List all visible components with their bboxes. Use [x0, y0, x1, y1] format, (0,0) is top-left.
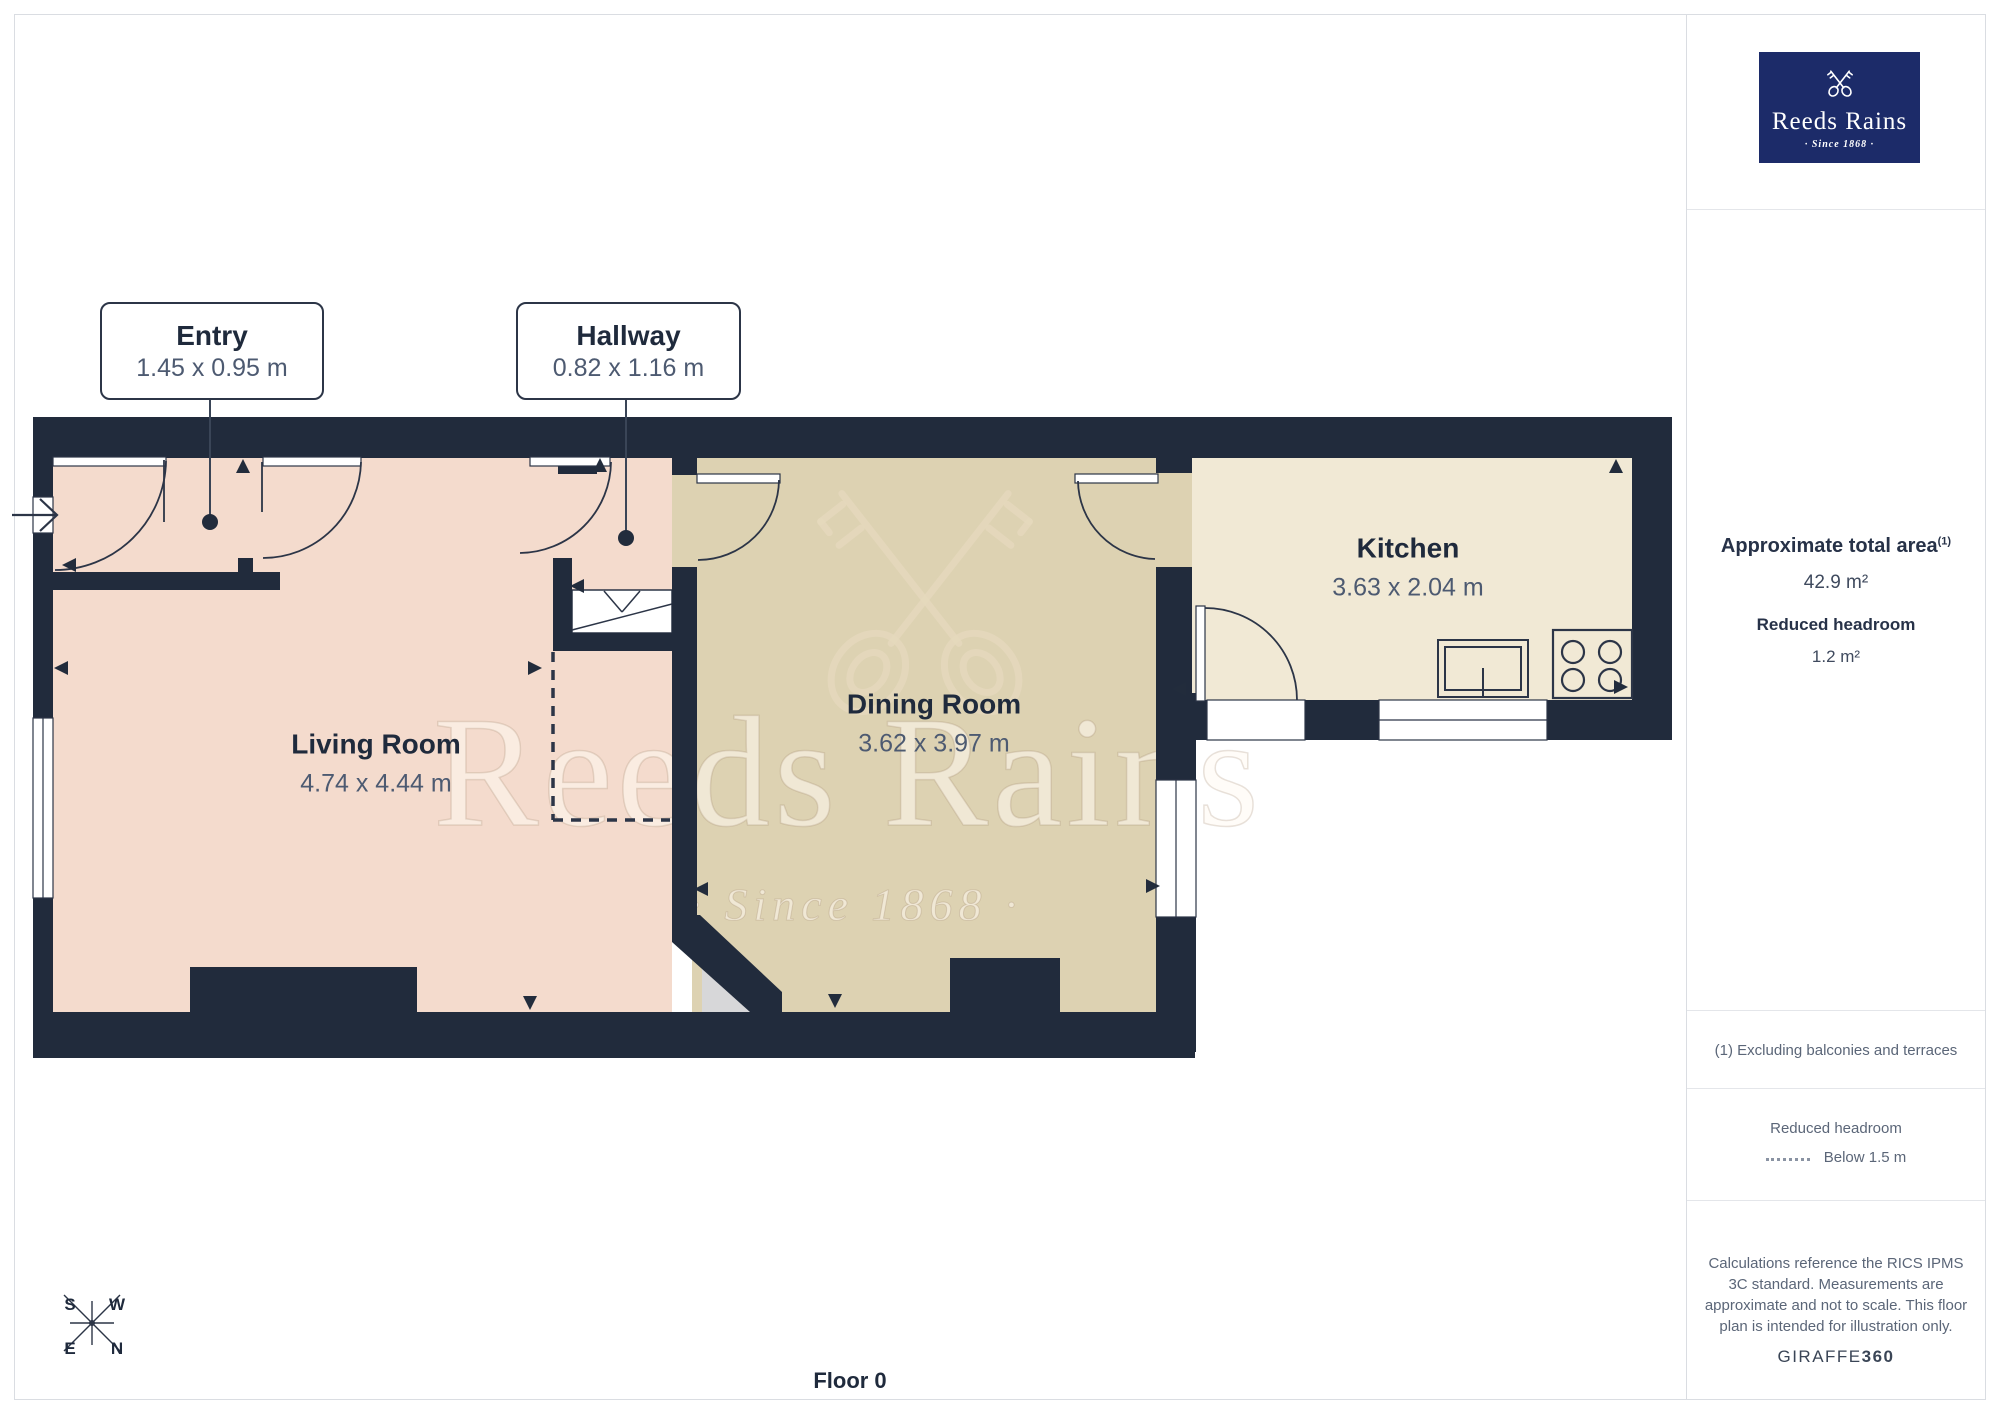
wall-dining-bottom-block [950, 958, 1060, 1014]
callout-entry-name: Entry [176, 318, 248, 353]
giraffe360-brand: GIRAFFE360 [1687, 1347, 1985, 1367]
door-leaf-dining-left [697, 474, 780, 483]
compass-south: S [64, 1295, 75, 1315]
room-dims: 3.62 x 3.97 m [847, 725, 1021, 761]
wall-top [33, 417, 1672, 458]
dining-door-threshold-right [1156, 473, 1192, 567]
kitchen-back-door-opening [1207, 700, 1305, 740]
disclaimer-text: Calculations reference the RICS IPMS 3C … [1703, 1253, 1969, 1337]
room-name: Living Room [291, 725, 461, 766]
room-label-dining: Dining Room 3.62 x 3.97 m [847, 685, 1021, 762]
wall-dining-kitchen [1156, 567, 1192, 693]
callout-hallway-name: Hallway [576, 318, 680, 353]
reduced-headroom-block: Reduced headroom 1.2 m² [1687, 615, 1985, 667]
total-area-block: Approximate total area(1) 42.9 m² [1687, 535, 1985, 594]
wall-entry-bottom [53, 572, 280, 590]
legend-label: Below 1.5 m [1824, 1149, 1907, 1166]
total-area-value: 42.9 m² [1687, 572, 1985, 594]
room-name: Dining Room [847, 685, 1021, 726]
wall-dining-left [672, 567, 697, 930]
callout-entry-dims: 1.45 x 0.95 m [136, 353, 287, 384]
floorplan-page: Reeds Rains · Since 1868 · [0, 0, 2000, 1414]
window-kitchen-bottom [1379, 700, 1547, 740]
giraffe-number: 360 [1862, 1347, 1895, 1366]
reduced-headroom-value: 1.2 m² [1687, 647, 1985, 667]
wall-stair-bottom [553, 633, 672, 651]
callout-entry: Entry 1.45 x 0.95 m [100, 302, 324, 400]
door-leaf-kitchen [1196, 606, 1205, 701]
sidebar-divider [1687, 1088, 1985, 1089]
total-area-footnote-marker: (1) [1938, 535, 1951, 547]
compass-north: N [111, 1339, 123, 1359]
compass-west: W [109, 1295, 125, 1315]
wall-door-jamb [238, 558, 253, 572]
sidebar-divider [1687, 209, 1985, 210]
door-sill-front [53, 457, 166, 466]
floor-label: Floor 0 [800, 1368, 900, 1394]
wall-kitchen-right [1632, 417, 1672, 740]
callout-hallway: Hallway 0.82 x 1.16 m [516, 302, 741, 400]
door-sill-inner [263, 457, 361, 466]
room-dims: 4.74 x 4.44 m [291, 765, 461, 801]
info-sidebar: Approximate total area(1) 42.9 m² Reduce… [1686, 15, 1985, 1399]
watermark-tagline: · Since 1868 · [689, 879, 1022, 930]
room-label-kitchen: Kitchen 3.63 x 2.04 m [1332, 529, 1483, 606]
giraffe-text: GIRAFFE [1777, 1347, 1861, 1366]
wall-fireplace [190, 967, 417, 1015]
wall-dining-kitchen-stub [1156, 458, 1192, 473]
wall-bottom [33, 1012, 1195, 1058]
sidebar-divider [1687, 1200, 1985, 1201]
dotted-line-icon [1766, 1154, 1810, 1161]
callout-hallway-dims: 0.82 x 1.16 m [553, 353, 704, 384]
compass-east: E [64, 1339, 75, 1359]
window-left [33, 718, 53, 898]
footnote: (1) Excluding balconies and terraces [1687, 1042, 1985, 1059]
room-label-living: Living Room 4.74 x 4.44 m [291, 725, 461, 802]
headroom-legend: Reduced headroom Below 1.5 m [1687, 1120, 1985, 1167]
room-name: Kitchen [1332, 529, 1483, 570]
window-dining-right [1156, 780, 1196, 917]
legend-heading: Reduced headroom [1687, 1120, 1985, 1137]
staircase [572, 590, 672, 633]
sidebar-divider [1687, 1010, 1985, 1011]
total-area-heading-text: Approximate total area [1721, 535, 1938, 557]
wall-dining-left-stub [672, 458, 697, 475]
total-area-heading: Approximate total area(1) [1721, 535, 1951, 557]
room-dims: 3.63 x 2.04 m [1332, 569, 1483, 605]
door-leaf-dining-right [1075, 474, 1158, 483]
reduced-headroom-heading: Reduced headroom [1687, 615, 1985, 635]
